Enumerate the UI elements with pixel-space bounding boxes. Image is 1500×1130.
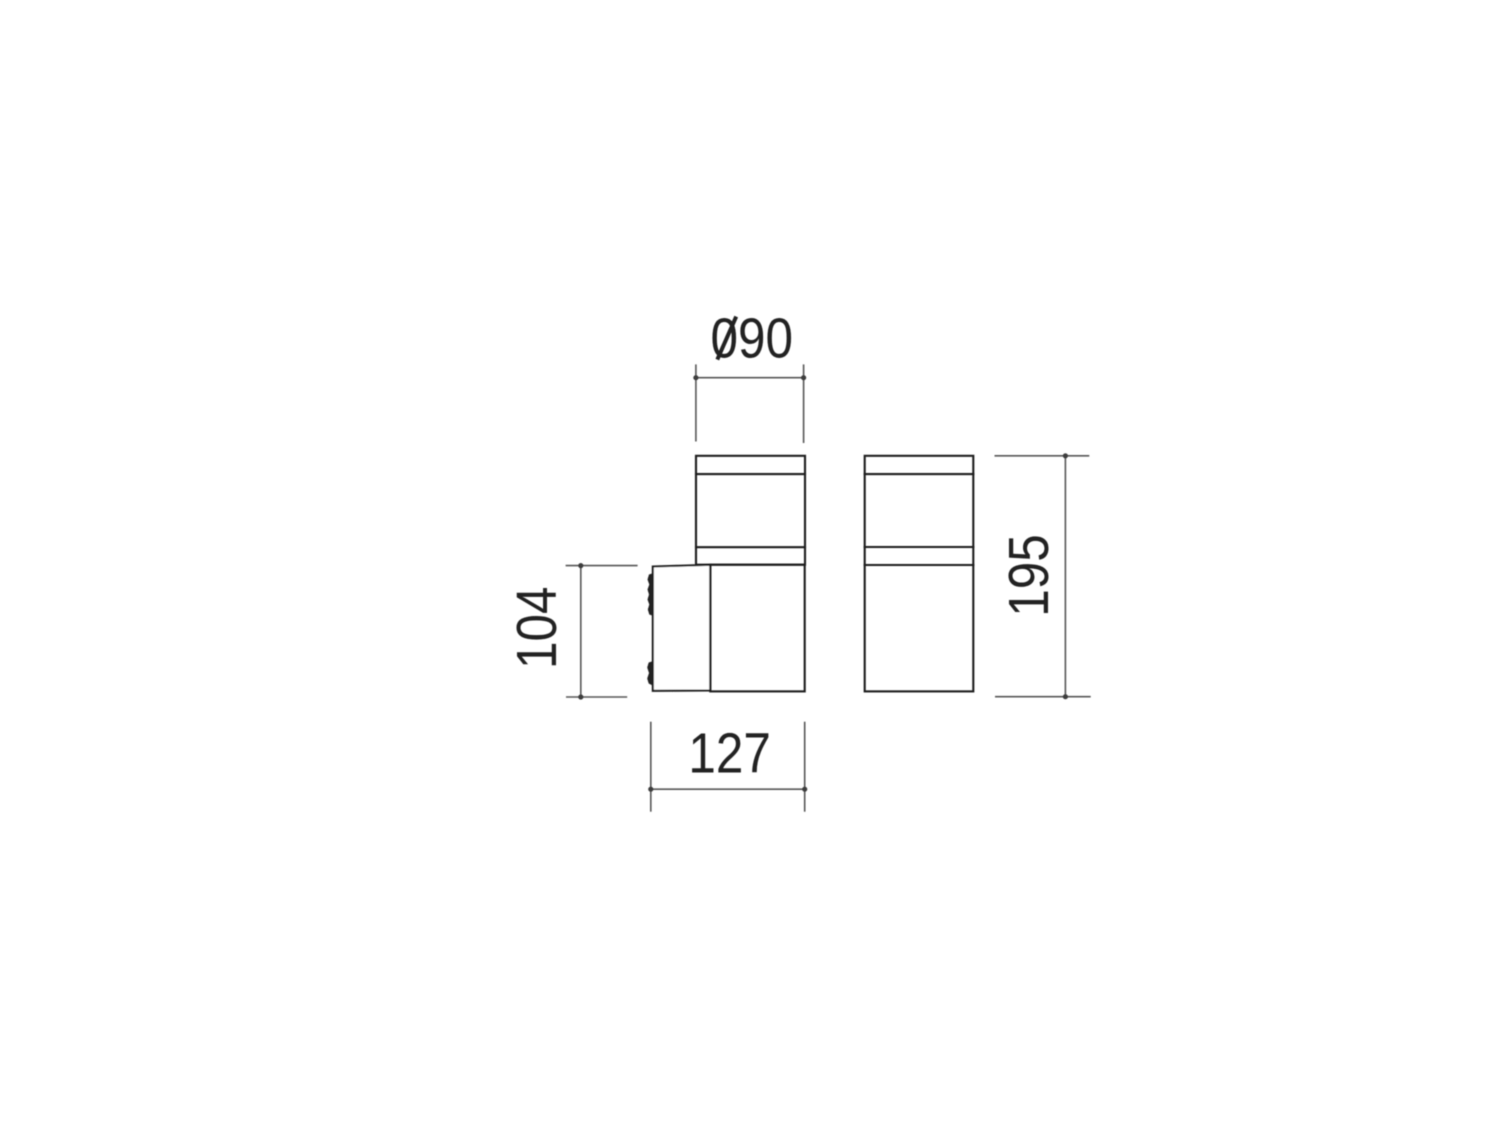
svg-text:104: 104 (506, 586, 569, 668)
svg-text:127: 127 (688, 722, 770, 785)
svg-text:195: 195 (998, 534, 1061, 616)
svg-text:090: 090 (710, 307, 792, 370)
